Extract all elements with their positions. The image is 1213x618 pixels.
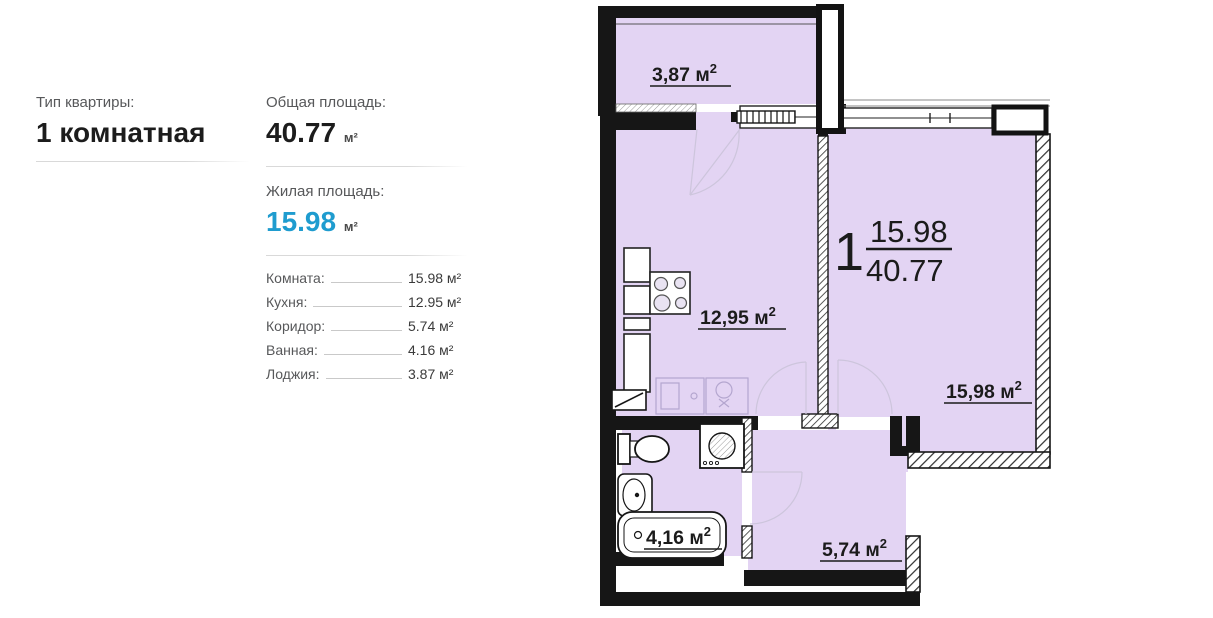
exterior-wall-right bbox=[1036, 134, 1050, 454]
washbasin bbox=[618, 474, 652, 516]
floor-plan: 1 15.98 40.77 3,87 м2 12,95 м2 15,98 м2 … bbox=[0, 0, 1213, 618]
corridor-area-label: 5,74 м2 bbox=[822, 536, 887, 561]
bathroom-area-label: 4,16 м2 bbox=[646, 524, 711, 549]
plan-fraction-bottom: 40.77 bbox=[866, 253, 944, 288]
kitchen-cabinet bbox=[624, 248, 650, 282]
plan-room-number: 1 bbox=[834, 222, 864, 282]
kitchen-area-label: 12,95 м2 bbox=[700, 304, 776, 329]
kitchen-cabinet bbox=[624, 334, 650, 392]
pillar bbox=[819, 7, 841, 131]
room-area-label: 15,98 м2 bbox=[946, 378, 1022, 403]
loggia-floor bbox=[614, 16, 816, 104]
exterior-wall-room-bottom bbox=[908, 452, 1050, 468]
exterior-wall-entry-side bbox=[906, 536, 920, 592]
loggia-area-label: 3,87 м2 bbox=[652, 61, 717, 86]
plan-fraction-top: 15.98 bbox=[870, 214, 948, 249]
page: { "info_panel": { "type_label": "Тип ква… bbox=[0, 0, 1213, 618]
kitchen-cabinet bbox=[624, 286, 650, 314]
partition-kitchen-room bbox=[818, 136, 828, 416]
loggia-sill bbox=[616, 104, 696, 112]
toilet bbox=[618, 434, 669, 464]
partition-foot bbox=[802, 414, 838, 428]
corner-pier bbox=[994, 107, 1046, 133]
living-floor bbox=[828, 128, 1038, 454]
kitchen-cabinet bbox=[624, 318, 650, 330]
radiator bbox=[737, 111, 795, 123]
partition-bath-lower bbox=[742, 526, 752, 558]
